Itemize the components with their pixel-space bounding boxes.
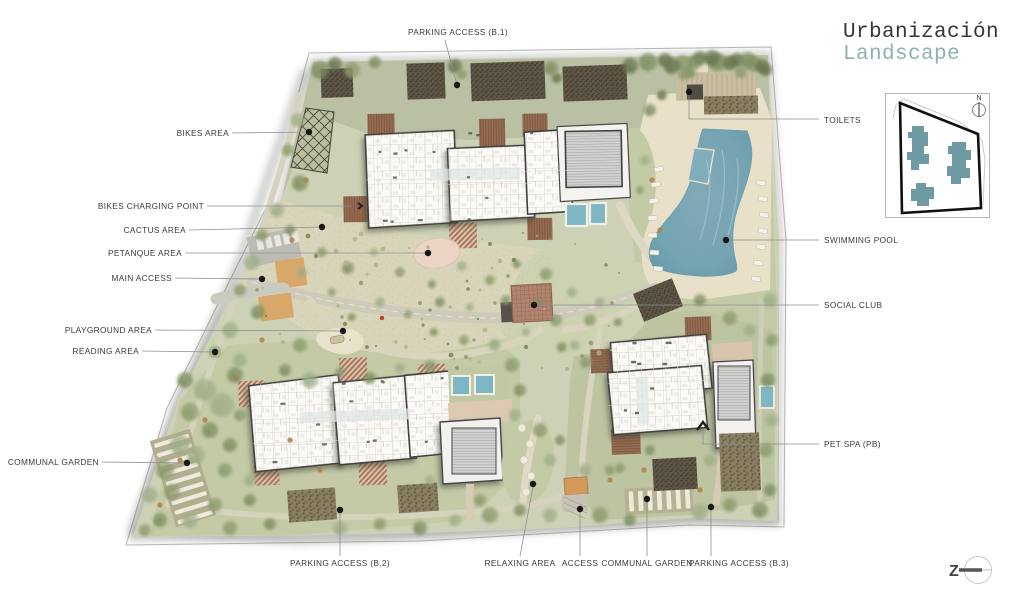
svg-text:PET SPA (PB): PET SPA (PB): [824, 439, 881, 449]
svg-text:Landscape: Landscape: [843, 43, 960, 66]
svg-text:PARKING ACCESS (B.2): PARKING ACCESS (B.2): [290, 558, 390, 568]
svg-text:SOCIAL CLUB: SOCIAL CLUB: [824, 300, 883, 310]
svg-text:SWIMMING POOL: SWIMMING POOL: [824, 235, 898, 245]
svg-text:PARKING ACCESS (B.1): PARKING ACCESS (B.1): [408, 27, 508, 37]
svg-text:MAIN ACCESS: MAIN ACCESS: [111, 273, 172, 283]
svg-text:BIKES CHARGING POINT: BIKES CHARGING POINT: [98, 201, 204, 211]
svg-text:N: N: [976, 95, 981, 102]
svg-text:Z: Z: [949, 563, 959, 580]
svg-text:Urbanización: Urbanización: [843, 21, 999, 44]
svg-text:BIKES AREA: BIKES AREA: [177, 128, 229, 138]
svg-text:RELAXING AREA: RELAXING AREA: [485, 558, 556, 568]
svg-text:PARKING ACCESS (B.3): PARKING ACCESS (B.3): [689, 558, 789, 568]
svg-text:ACCESS: ACCESS: [562, 558, 598, 568]
svg-text:READING AREA: READING AREA: [73, 346, 140, 356]
svg-text:COMMUNAL GARDEN: COMMUNAL GARDEN: [8, 457, 99, 467]
svg-text:PLAYGROUND AREA: PLAYGROUND AREA: [65, 325, 152, 335]
svg-text:PETANQUE AREA: PETANQUE AREA: [108, 248, 182, 258]
svg-text:COMMUNAL GARDEN: COMMUNAL GARDEN: [601, 558, 692, 568]
svg-text:CACTUS AREA: CACTUS AREA: [124, 225, 187, 235]
svg-text:TOILETS: TOILETS: [824, 115, 861, 125]
